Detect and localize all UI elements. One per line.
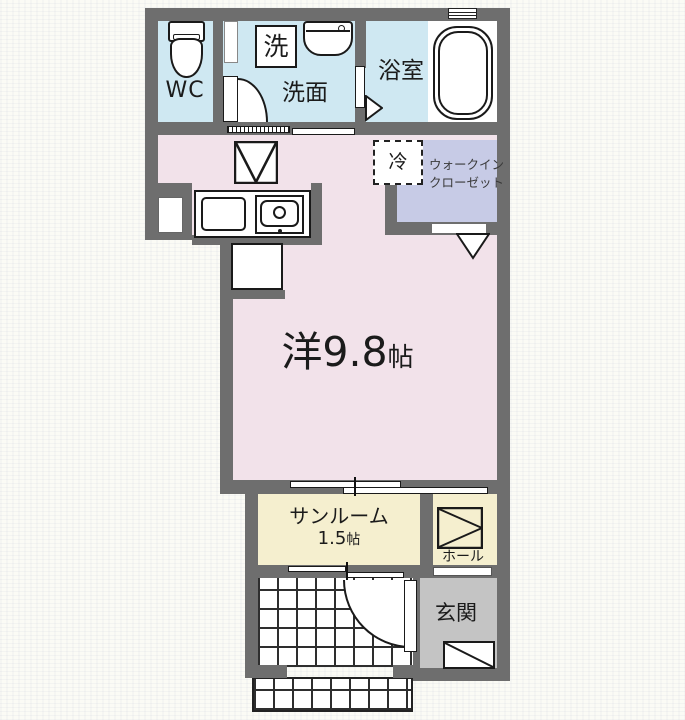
wall — [228, 290, 285, 299]
toilet-icon — [168, 21, 205, 78]
floor-plan: 洗 冷 — [0, 0, 685, 720]
entrance-door-leaf-icon — [404, 580, 417, 652]
entry-step-tiles — [252, 677, 413, 712]
sliding-window-icon — [347, 572, 404, 578]
hall-label: ホール — [434, 550, 492, 565]
bathtub-icon — [433, 26, 493, 120]
washer-label: 洗 — [263, 33, 288, 61]
wall — [311, 183, 322, 240]
sliding-window-icon — [288, 566, 346, 572]
wall — [213, 21, 223, 122]
wall — [355, 21, 366, 68]
sliding-window-icon — [343, 487, 488, 494]
wall — [245, 665, 287, 678]
bathroom-label: 浴室 — [372, 59, 430, 84]
kitchen-sink-icon — [255, 195, 304, 234]
wall — [245, 493, 258, 677]
western-room-size: 洋9.8 — [281, 330, 387, 375]
sink-icon — [303, 21, 353, 56]
wc-label: WC — [160, 79, 210, 103]
hall-threshold-opening — [433, 567, 492, 576]
wall — [497, 8, 510, 681]
wall-niche — [224, 21, 238, 63]
washing-machine-icon: 洗 — [255, 25, 297, 68]
sunroom-label: サンルーム 1.5帖 — [270, 505, 408, 549]
kitchen-counter — [194, 190, 311, 238]
walk-in-closet-label: ウォークイン クローゼット — [429, 156, 501, 192]
wc-door-leaf-icon — [223, 76, 238, 122]
closet-door-triangle-icon — [456, 233, 490, 260]
sliding-door-icon — [292, 128, 355, 135]
wall — [413, 668, 510, 681]
refrigerator-box: 冷 — [373, 140, 423, 185]
western-room-unit: 帖 — [388, 344, 414, 373]
kitchen-v-marker-icon — [234, 141, 278, 184]
closet-label-line1: ウォークイン — [429, 156, 501, 174]
storage-box — [231, 243, 283, 290]
refrigerator-label: 冷 — [388, 152, 407, 173]
closet-door-opening — [432, 224, 486, 233]
bath-door-leaf-icon — [355, 66, 365, 108]
shoe-cabinet-icon — [443, 641, 495, 669]
bath-door-triangle-icon — [365, 95, 383, 121]
sliding-door-icon — [227, 126, 290, 133]
window-center-tick — [346, 562, 348, 581]
counter-compartment — [201, 197, 246, 231]
bathroom-window-icon — [448, 8, 477, 19]
closet-label-line2: クローゼット — [429, 174, 501, 192]
washroom-label: 洗面 — [271, 81, 339, 106]
window-center-tick — [354, 477, 356, 496]
wall-window-icon — [158, 197, 183, 233]
western-room-label: 洋9.8 帖 — [260, 330, 435, 375]
entrance-label: 玄関 — [430, 602, 482, 625]
hall-closet-icon — [437, 507, 483, 549]
sunroom-name: サンルーム — [270, 505, 408, 527]
sunroom-size: 1.5帖 — [270, 529, 408, 549]
